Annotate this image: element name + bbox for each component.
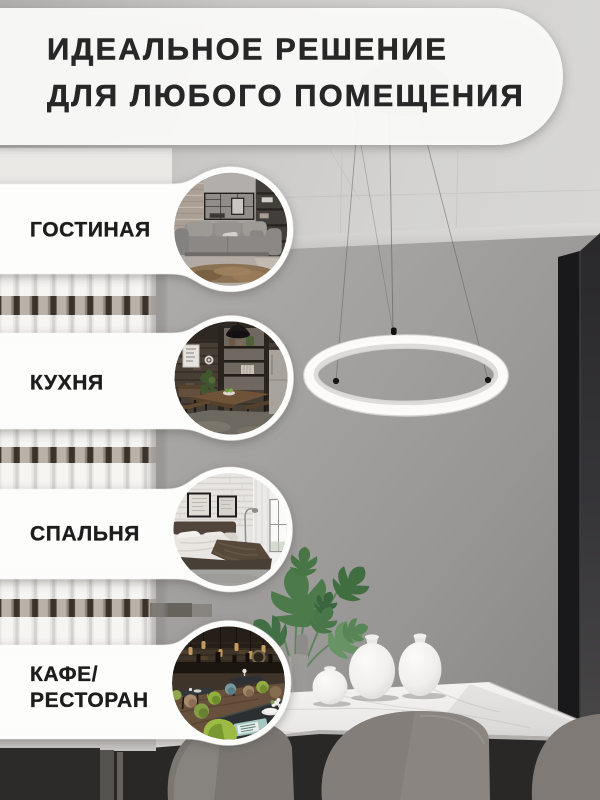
svg-text:КУХНЯ: КУХНЯ [30, 372, 104, 395]
svg-text:ДЛЯ ЛЮБОГО ПОМЕЩЕНИЯ: ДЛЯ ЛЮБОГО ПОМЕЩЕНИЯ [47, 78, 525, 113]
svg-text:ИДЕАЛЬНОЕ РЕШЕНИЕ: ИДЕАЛЬНОЕ РЕШЕНИЕ [47, 32, 448, 67]
svg-text:СПАЛЬНЯ: СПАЛЬНЯ [30, 523, 140, 546]
svg-text:КАФЕ/: КАФЕ/ [30, 663, 98, 686]
svg-text:ГОСТИНАЯ: ГОСТИНАЯ [30, 219, 151, 242]
svg-text:РЕСТОРАН: РЕСТОРАН [30, 689, 149, 712]
